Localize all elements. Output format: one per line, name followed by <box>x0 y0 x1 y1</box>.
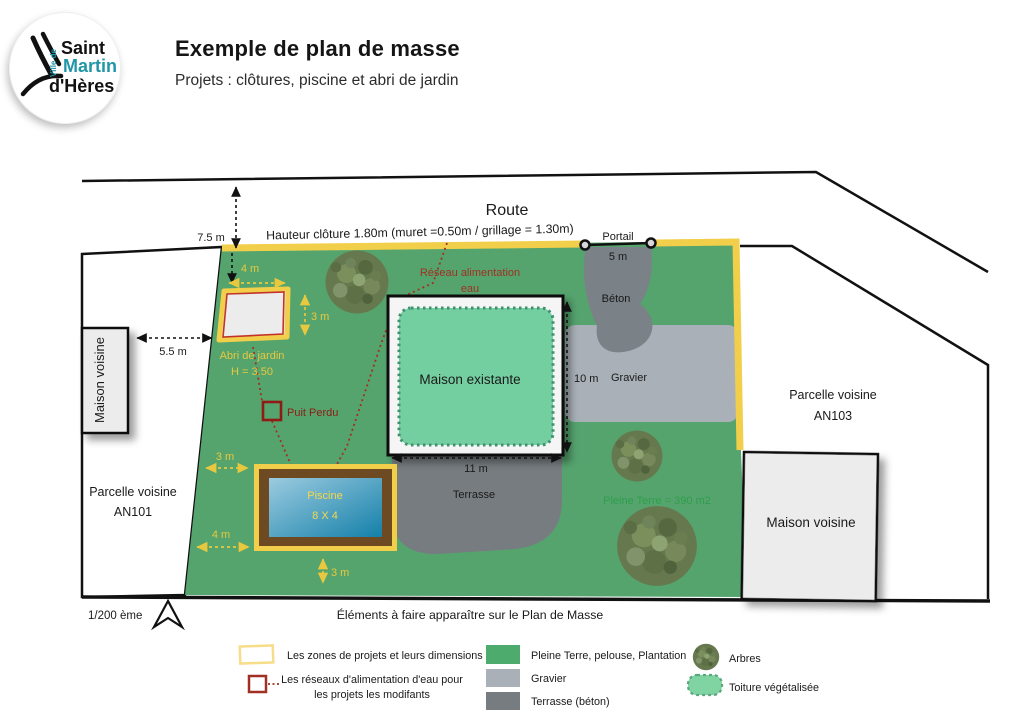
legend-reseaux-label-line1: Les réseaux d'alimentation d'eau pour <box>281 674 463 686</box>
dim-pool-left-top-label: 3 m <box>216 451 234 463</box>
tree-icon <box>693 644 719 670</box>
route-label: Route <box>486 202 529 219</box>
legend-arbres-label: Arbres <box>729 653 761 665</box>
soakaway-label: Puit Perdu <box>287 407 338 419</box>
north-arrow-icon <box>154 601 182 627</box>
gravel-label: Gravier <box>611 372 647 384</box>
dim-house-depth-label: 10 m <box>574 373 598 385</box>
gate-post-icon <box>581 241 590 250</box>
fence-label: Hauteur clôture 1.80m (muret =0.50m / gr… <box>266 222 574 243</box>
neighbor-house-right-label: Maison voisine <box>766 515 855 530</box>
site-plan: Route Hauteur clôture 1.80m (muret =0.50… <box>0 0 1030 725</box>
water-label-line1: Réseau alimentation <box>420 267 520 279</box>
legend-toiture-label: Toiture végétalisée <box>729 682 819 694</box>
dim-house-width-label: 11 m <box>464 463 488 475</box>
shed-label-line2: H = 3.50 <box>231 366 273 378</box>
pool <box>269 478 382 537</box>
legend-terrasse-label: Terrasse (béton) <box>531 696 610 708</box>
legend-swatch-terrasse <box>486 692 520 710</box>
tree-icon <box>612 431 663 482</box>
scale-label: 1/200 ème <box>88 610 142 622</box>
neighbor-house-left-label: Maison voisine <box>92 337 107 423</box>
garden-shed <box>219 289 288 340</box>
parcel-an101-label-line2: AN101 <box>114 505 152 519</box>
parcel-an103-label-line1: Parcelle voisine <box>789 388 877 402</box>
dim-gate-label: 5 m <box>609 251 627 263</box>
legend-pleine-terre-label: Pleine Terre, pelouse, Plantation <box>531 650 686 662</box>
dim-pool-left-bottom-label: 4 m <box>212 529 230 541</box>
terrace-label: Terrasse <box>453 489 495 501</box>
dim-pool-bottom-label: 3 m <box>331 567 349 579</box>
dim-shed-to-neighbor-label: 5.5 m <box>159 346 187 358</box>
dim-shed-width-label: 4 m <box>241 263 259 275</box>
concrete-label: Béton <box>602 293 631 305</box>
pool-label-line1: Piscine <box>307 490 342 502</box>
legend-swatch-pleine-terre <box>486 645 520 664</box>
caption: Éléments à faire apparaître sur le Plan … <box>337 607 604 622</box>
legend: Les zones de projets et leurs dimensions… <box>240 644 819 710</box>
legend-swatch-toiture <box>688 675 722 695</box>
legend-swatch-gravier <box>486 669 520 687</box>
water-label-line2: eau <box>461 283 479 295</box>
tree-icon <box>617 506 697 586</box>
tree-icon <box>326 251 389 314</box>
page: Ville de Saint Martin d'Hères Exemple de… <box>0 0 1030 725</box>
dim-road-setback-label: 7.5 m <box>197 232 225 244</box>
shed-label-line1: Abri de jardin <box>220 350 285 362</box>
fence-top <box>222 244 584 248</box>
gate-post-icon <box>647 239 656 248</box>
dim-shed-depth-label: 3 m <box>311 311 329 323</box>
legend-swatch-reseaux <box>249 676 266 692</box>
pool-label-line2: 8 X 4 <box>312 510 338 522</box>
legend-swatch-zones <box>240 645 274 663</box>
pleine-terre-label: Pleine Terre = 390 m2 <box>603 495 711 507</box>
legend-gravier-label: Gravier <box>531 673 567 685</box>
legend-reseaux-label-line2: les projets les modifants <box>314 689 430 701</box>
parcel-an101-label-line1: Parcelle voisine <box>89 485 177 499</box>
parcel-an103-label-line2: AN103 <box>814 409 852 423</box>
existing-house-label: Maison existante <box>419 372 520 387</box>
gate-label: Portail <box>602 231 633 243</box>
legend-zones-label: Les zones de projets et leurs dimensions <box>287 650 483 662</box>
